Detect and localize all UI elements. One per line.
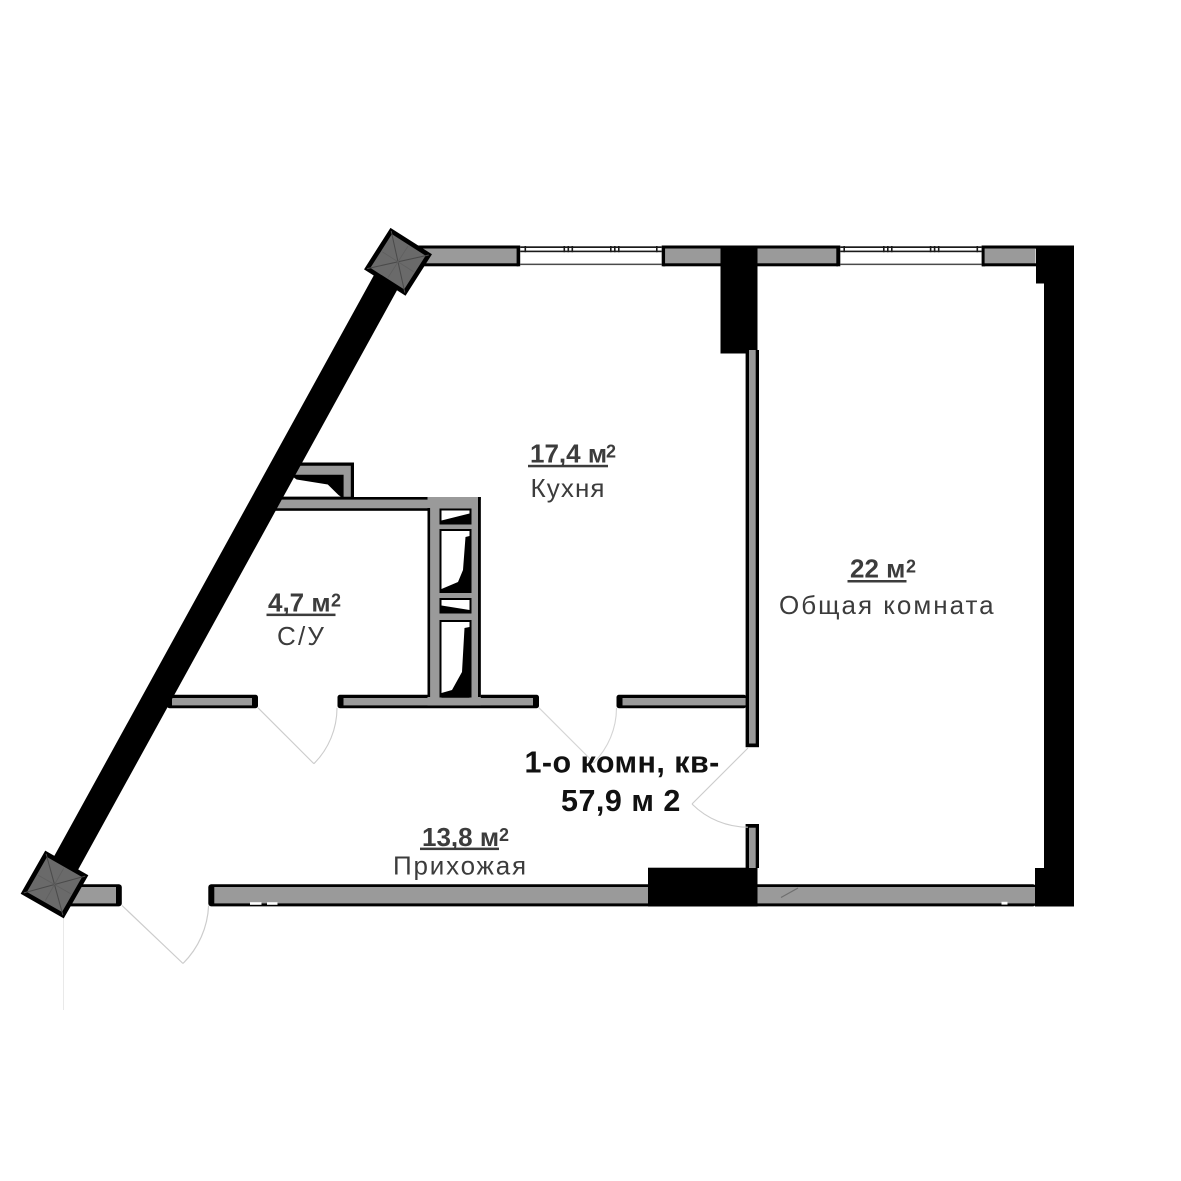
svg-text:Кухня: Кухня — [531, 473, 606, 503]
svg-text:22 м: 22 м — [850, 553, 905, 583]
svg-text:2: 2 — [331, 591, 341, 611]
svg-text:2: 2 — [906, 556, 916, 576]
svg-text:Прихожая: Прихожая — [393, 850, 528, 880]
svg-text:4,7 м: 4,7 м — [268, 588, 331, 618]
svg-text:2: 2 — [499, 825, 509, 845]
svg-text:Общая комната: Общая комната — [779, 590, 996, 620]
svg-text:17,4 м: 17,4 м — [530, 439, 607, 469]
svg-text:57,9 м 2: 57,9 м 2 — [561, 784, 681, 818]
svg-text:С/У: С/У — [277, 621, 326, 651]
svg-text:1-о комн, кв-: 1-о комн, кв- — [525, 746, 720, 780]
svg-text:2: 2 — [606, 442, 616, 462]
